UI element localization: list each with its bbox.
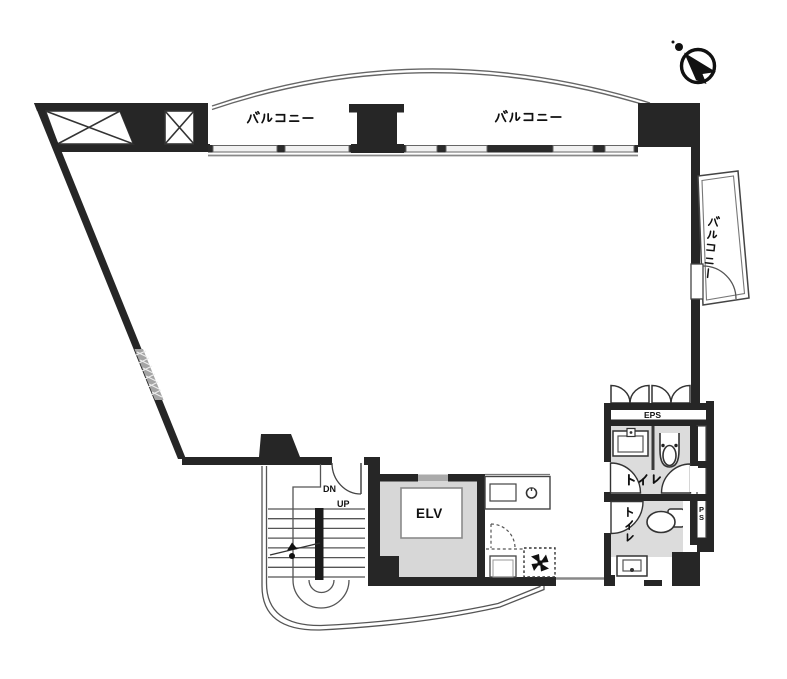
svg-text:S: S [699, 513, 704, 522]
svg-text:ELV: ELV [416, 506, 443, 521]
svg-text:UP: UP [337, 499, 350, 509]
svg-text:EPS: EPS [644, 410, 661, 420]
svg-text:DN: DN [323, 484, 336, 494]
